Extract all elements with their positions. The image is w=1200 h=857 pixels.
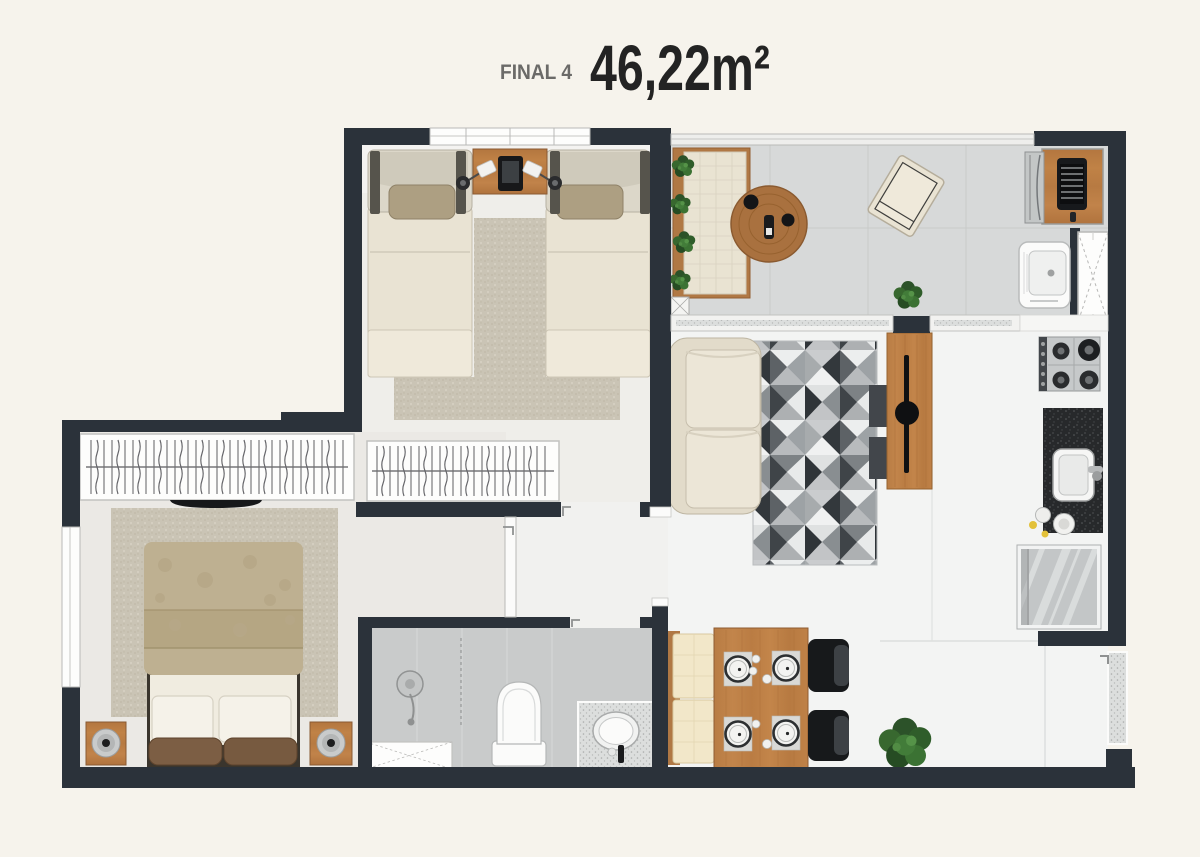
svg-text:46,22m²: 46,22m² [590,32,770,104]
svg-text:FINAL 4: FINAL 4 [500,61,572,84]
